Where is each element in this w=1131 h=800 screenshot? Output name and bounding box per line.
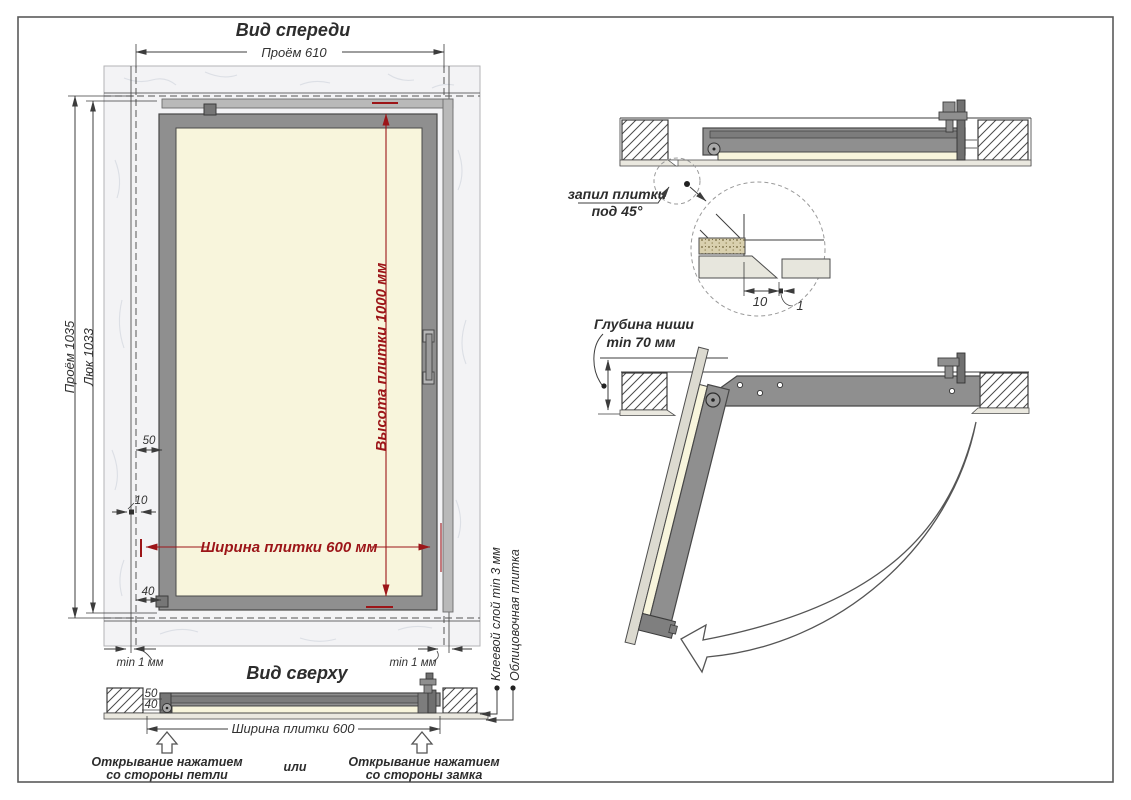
detail-leader-dot (684, 181, 690, 187)
drawing-sheet: Вид спереди (0, 0, 1131, 800)
gap-min-right-text: min 1 мм (389, 657, 436, 669)
wall-section-right (443, 688, 477, 713)
wall-closed-left (622, 120, 668, 160)
wall-tile-strip (104, 713, 488, 719)
detail-dim-10-text: 10 (753, 294, 768, 309)
wall-open-right (980, 373, 1028, 408)
detail-dim-1-text: 1 (796, 298, 803, 313)
tile-cut-text-2: под 45° (592, 203, 643, 219)
tile-strip-closed (620, 160, 1031, 166)
front-view: Вид спереди (62, 20, 480, 669)
wall-open-left (622, 373, 667, 410)
gap-min-left-text: min 1 мм (116, 657, 163, 669)
dim-tile-width-text: Ширина плитки 600 мм (200, 539, 377, 556)
dim-50-text: 50 (143, 435, 156, 447)
label-tile: Облицовочная плитка (508, 549, 522, 681)
niche-depth-text-2: min 70 мм (607, 334, 677, 350)
wall-closed-right (978, 120, 1028, 160)
technical-drawing: Вид спереди (0, 0, 1131, 800)
hatch-door-front (156, 104, 437, 610)
label-adhesive: Клеевой слой min 3 мм (489, 547, 503, 681)
tile-cut-text-1: запил плитки (568, 186, 667, 202)
niche-depth-dot (601, 383, 606, 388)
frame-band-right (443, 99, 453, 612)
hinge-pin-center (166, 707, 169, 710)
note-or: или (283, 760, 306, 774)
detail-wall-tile (699, 238, 745, 254)
top-view-title: Вид сверху (246, 663, 348, 683)
note-lock-1: Открывание нажатием (348, 755, 499, 769)
dim-10-text: 10 (135, 495, 148, 507)
dim-depth-40-text: 40 (145, 699, 158, 711)
door-tile-top (172, 706, 424, 713)
dim-10-node (129, 510, 134, 515)
front-view-title: Вид спереди (236, 20, 351, 40)
tile-strip-open-right (972, 408, 1029, 414)
niche-depth-text-1: Глубина ниши (594, 316, 694, 332)
dim-tile-height-text: Высота плитки 1000 мм (373, 263, 390, 452)
dim-top-tile-width-text: Ширина плитки 600 (232, 721, 356, 736)
hinge-top (204, 104, 216, 115)
wall-section-left (107, 688, 143, 713)
note-hinge-1: Открывание нажатием (91, 755, 242, 769)
leader-dot-adhesive (494, 685, 499, 690)
detail-door-tile-right (782, 259, 830, 278)
dim-opening-height-text: Проём 1035 (62, 320, 77, 393)
note-lock-2: со стороны замка (366, 768, 483, 782)
leader-dot-tile (510, 685, 515, 690)
tile-strip-open-left (620, 410, 675, 416)
dim-opening-width-text: Проём 610 (261, 45, 327, 60)
door-closed-tile (718, 152, 958, 160)
lock-top-view (418, 673, 436, 713)
hinge-bottom (156, 596, 168, 607)
dim-40-text: 40 (142, 586, 155, 598)
dim-hatch-height-text: Люк 1033 (81, 328, 96, 387)
note-hinge-2: со стороны петли (106, 768, 228, 782)
